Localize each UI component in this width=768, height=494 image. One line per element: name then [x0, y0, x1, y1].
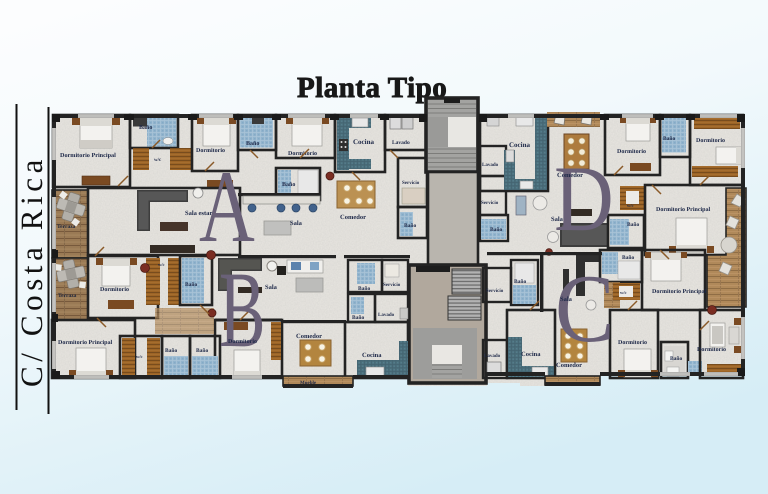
svg-text:Sala: Sala — [265, 284, 278, 291]
svg-text:D: D — [554, 147, 614, 251]
svg-text:Servicio: Servicio — [486, 288, 504, 294]
svg-text:Comedor: Comedor — [340, 214, 366, 221]
svg-text:Baño: Baño — [490, 227, 502, 233]
svg-text:Terraza: Terraza — [57, 224, 76, 230]
svg-text:Baño: Baño — [663, 136, 675, 142]
svg-text:w/c: w/c — [158, 262, 165, 267]
svg-text:Baño: Baño — [196, 348, 208, 354]
svg-text:Dormitorio: Dormitorio — [100, 286, 129, 293]
svg-text:Baño: Baño — [514, 279, 526, 285]
svg-text:Servicio: Servicio — [383, 282, 401, 288]
svg-text:A: A — [199, 150, 255, 264]
svg-text:Sala: Sala — [290, 220, 303, 227]
svg-text:w/c: w/c — [620, 290, 627, 295]
svg-text:Dormitorio: Dormitorio — [617, 148, 646, 155]
svg-text:Sala: Sala — [551, 216, 564, 223]
svg-text:Baño: Baño — [622, 255, 634, 261]
svg-text:Lavado: Lavado — [482, 162, 499, 168]
svg-text:Baño: Baño — [404, 223, 416, 229]
svg-text:w/c: w/c — [136, 354, 143, 359]
svg-text:Dormitorio Principal: Dormitorio Principal — [60, 152, 116, 159]
svg-text:Baño: Baño — [282, 181, 295, 188]
svg-text:Baño: Baño — [165, 348, 177, 354]
svg-text:Cocina: Cocina — [353, 138, 375, 146]
svg-text:Baño: Baño — [627, 222, 639, 228]
svg-text:Dormitorio: Dormitorio — [228, 338, 257, 345]
svg-text:Baño: Baño — [185, 282, 197, 288]
svg-text:Cocina: Cocina — [362, 352, 382, 359]
svg-text:Lavado: Lavado — [484, 353, 501, 359]
svg-text:Dormitorio Principal: Dormitorio Principal — [656, 206, 710, 213]
svg-text:Sala estar: Sala estar — [185, 210, 212, 217]
svg-text:Baño: Baño — [670, 356, 682, 362]
svg-text:B: B — [219, 249, 266, 370]
svg-text:Baño: Baño — [358, 286, 370, 292]
svg-text:Comedor: Comedor — [296, 333, 322, 340]
svg-text:Dormitorio Principal: Dormitorio Principal — [652, 288, 706, 295]
svg-text:Cocina: Cocina — [509, 141, 531, 149]
svg-text:Dormitorio: Dormitorio — [618, 339, 647, 346]
svg-text:w/c: w/c — [154, 157, 162, 163]
svg-text:w/c: w/c — [627, 203, 634, 208]
svg-text:Terraza: Terraza — [58, 293, 77, 299]
svg-text:Lavado: Lavado — [392, 140, 410, 146]
svg-text:Comedor: Comedor — [557, 172, 583, 179]
svg-text:Sala: Sala — [560, 296, 573, 303]
svg-text:Servicio: Servicio — [402, 180, 420, 186]
svg-text:Cocina: Cocina — [521, 351, 541, 358]
svg-text:Lavado: Lavado — [378, 312, 395, 318]
svg-text:Baño: Baño — [246, 140, 259, 147]
svg-text:Dormitorio: Dormitorio — [696, 137, 725, 144]
svg-text:C: C — [555, 255, 615, 362]
svg-text:Servicio: Servicio — [481, 200, 499, 206]
svg-text:Baño: Baño — [139, 124, 152, 131]
svg-text:Dormitorio Principal: Dormitorio Principal — [58, 339, 112, 346]
svg-text:Baño: Baño — [352, 315, 364, 321]
svg-text:C/ Costa Rica: C/ Costa Rica — [14, 155, 49, 387]
svg-text:Comedor: Comedor — [556, 362, 582, 369]
